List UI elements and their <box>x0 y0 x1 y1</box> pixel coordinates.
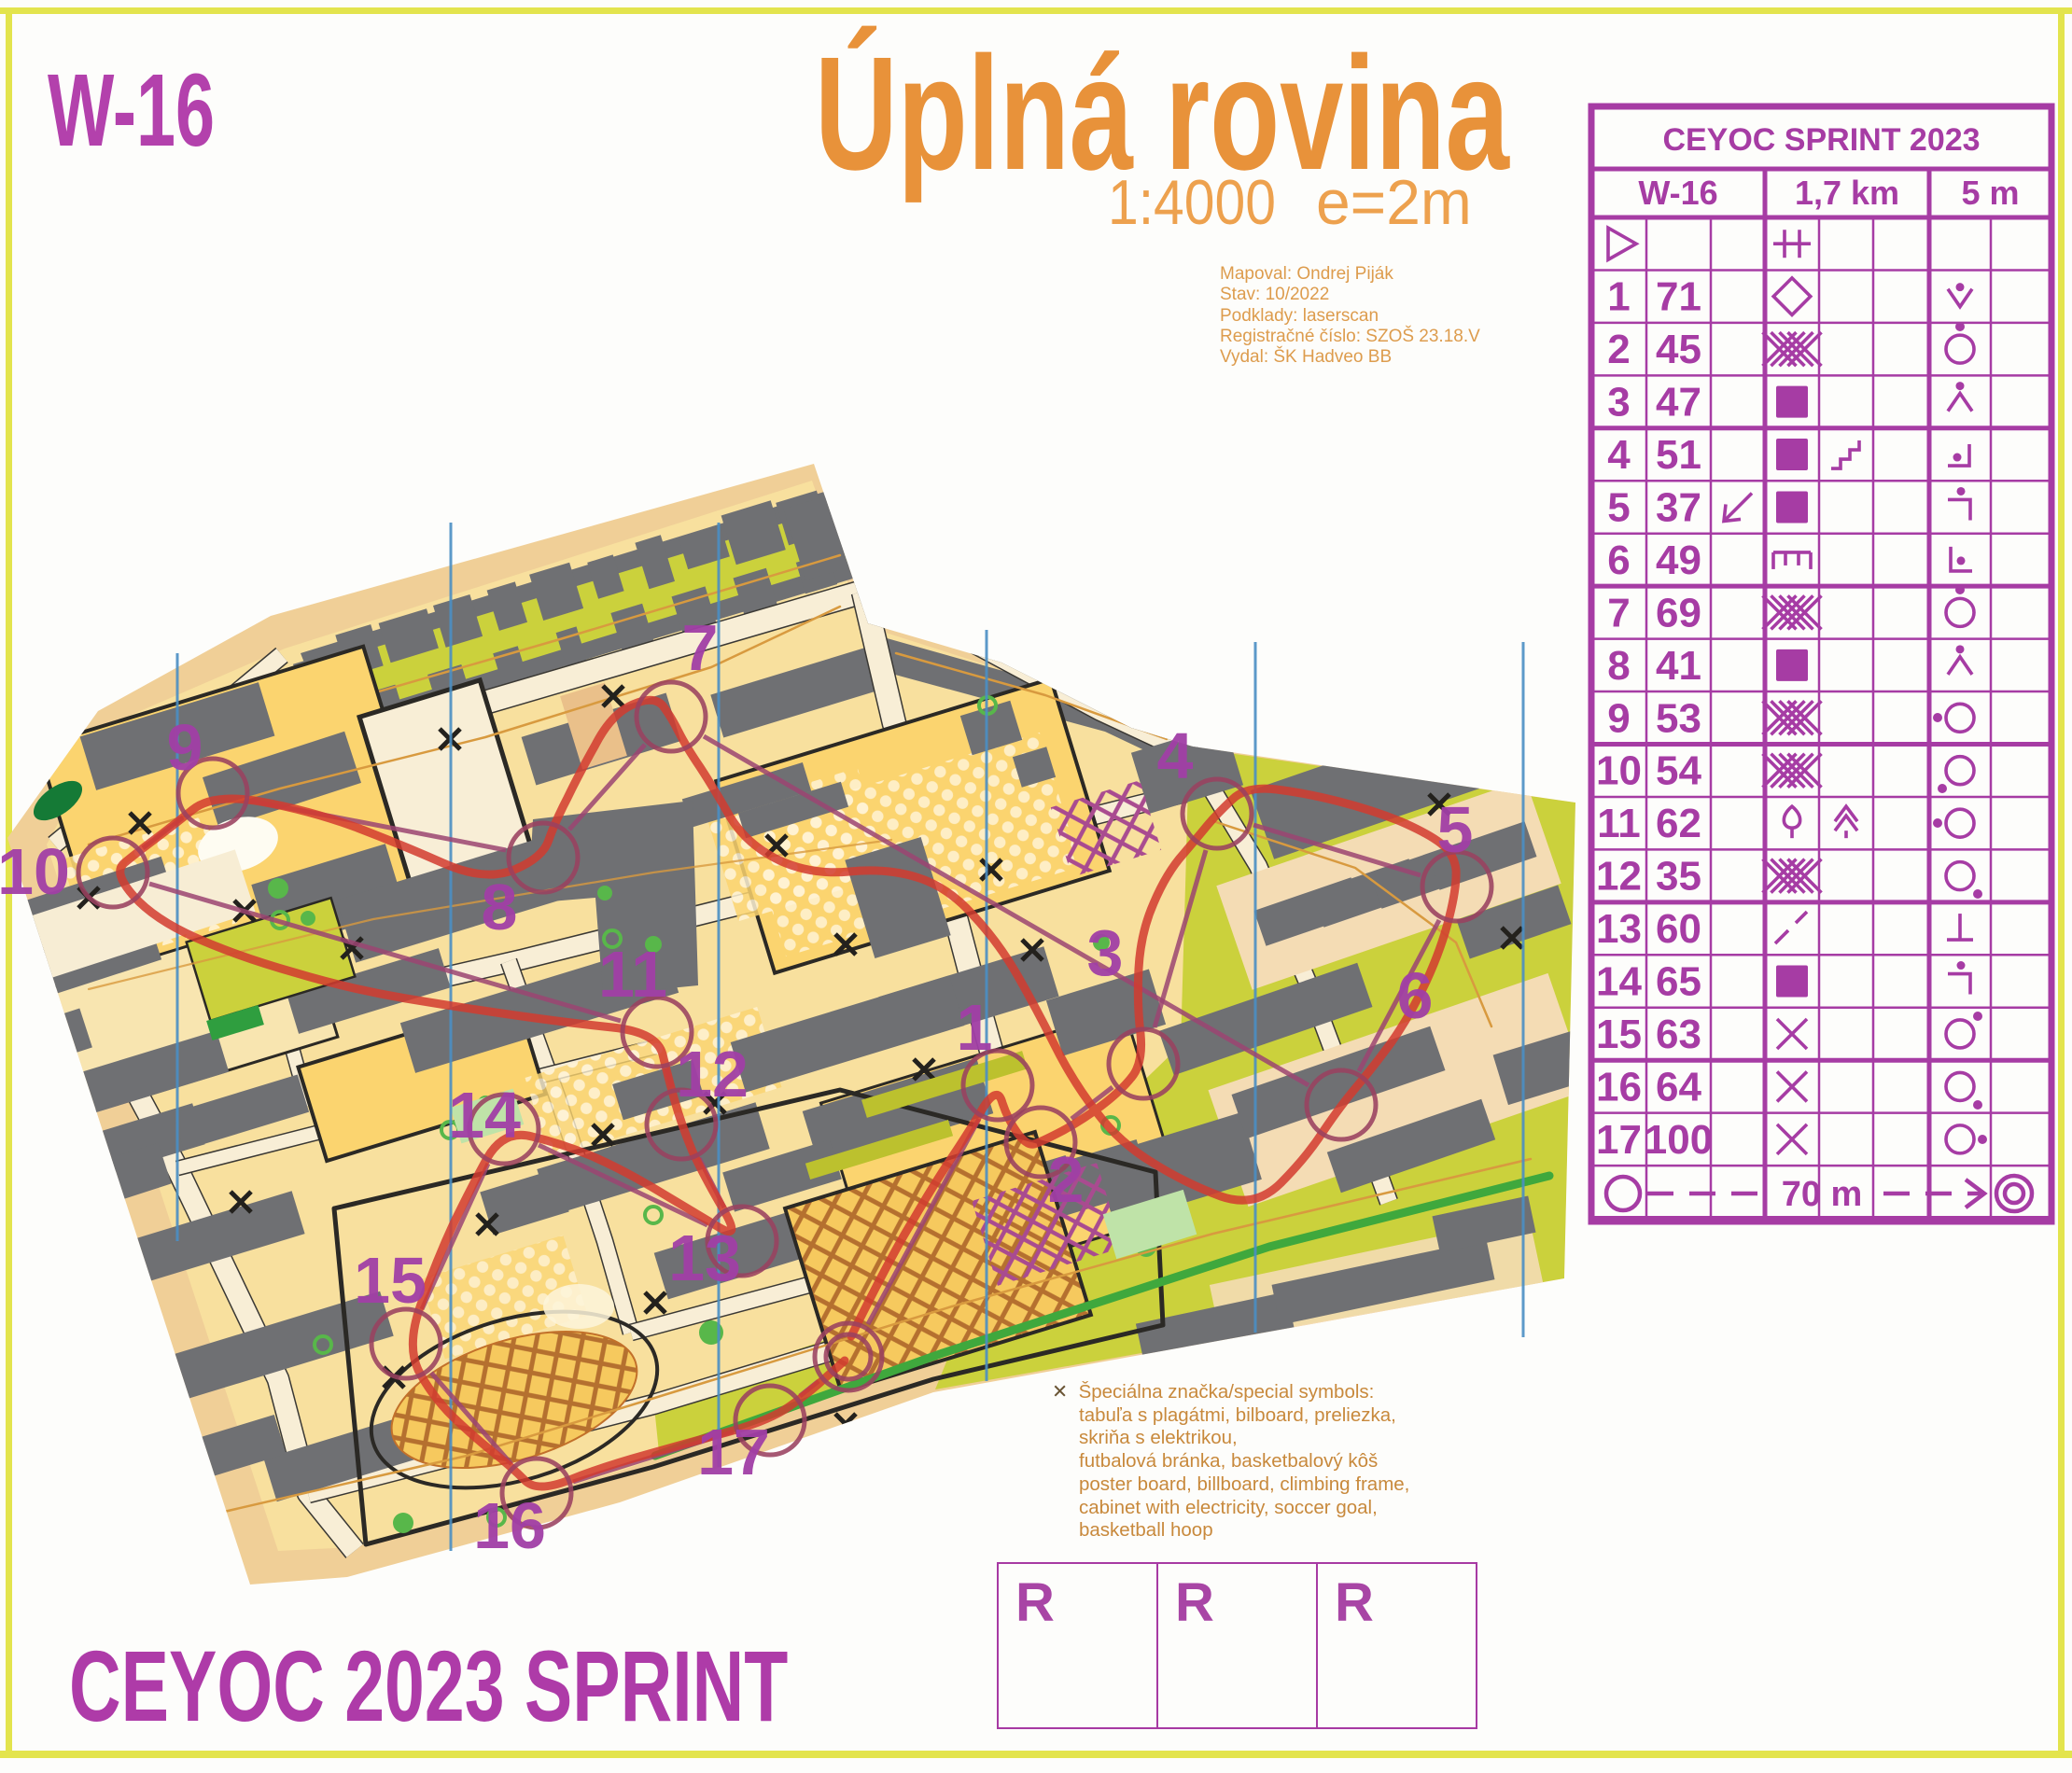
svg-text:60: 60 <box>1656 906 1701 952</box>
svg-text:8: 8 <box>1607 643 1630 689</box>
svg-text:45: 45 <box>1656 327 1701 372</box>
svg-text:64: 64 <box>1656 1064 1701 1110</box>
svg-text:53: 53 <box>1656 695 1701 741</box>
svg-text:5: 5 <box>1607 484 1630 530</box>
svg-text:65: 65 <box>1656 959 1701 1005</box>
svg-text:71: 71 <box>1656 274 1701 320</box>
svg-text:69: 69 <box>1656 590 1701 635</box>
svg-text:14: 14 <box>1596 959 1642 1005</box>
svg-text:12: 12 <box>1596 854 1642 900</box>
svg-text:63: 63 <box>1656 1012 1701 1057</box>
svg-text:35: 35 <box>1656 854 1701 900</box>
svg-text:37: 37 <box>1656 484 1701 530</box>
svg-text:49: 49 <box>1656 537 1701 583</box>
svg-text:CEYOC SPRINT 2023: CEYOC SPRINT 2023 <box>1662 122 1980 158</box>
svg-text:1,7 km: 1,7 km <box>1795 174 1899 212</box>
svg-text:54: 54 <box>1656 748 1701 794</box>
svg-text:51: 51 <box>1656 432 1701 478</box>
svg-text:70 m: 70 m <box>1782 1175 1863 1214</box>
svg-text:4: 4 <box>1607 432 1631 478</box>
svg-text:16: 16 <box>1596 1064 1642 1110</box>
svg-text:17: 17 <box>1596 1117 1642 1163</box>
svg-text:6: 6 <box>1607 537 1630 583</box>
svg-text:7: 7 <box>1607 590 1630 635</box>
svg-text:10: 10 <box>1596 748 1642 794</box>
svg-text:3: 3 <box>1607 380 1630 426</box>
svg-text:15: 15 <box>1596 1012 1642 1057</box>
svg-text:47: 47 <box>1656 380 1701 426</box>
svg-text:1: 1 <box>1607 274 1630 320</box>
svg-text:100: 100 <box>1645 1117 1713 1163</box>
svg-text:9: 9 <box>1607 695 1630 741</box>
svg-text:41: 41 <box>1656 643 1701 689</box>
svg-text:13: 13 <box>1596 906 1642 952</box>
svg-text:11: 11 <box>1597 801 1641 846</box>
svg-text:5 m: 5 m <box>1961 174 2019 212</box>
svg-text:W-16: W-16 <box>1638 174 1717 212</box>
svg-text:62: 62 <box>1656 801 1701 846</box>
svg-text:2: 2 <box>1607 327 1630 372</box>
